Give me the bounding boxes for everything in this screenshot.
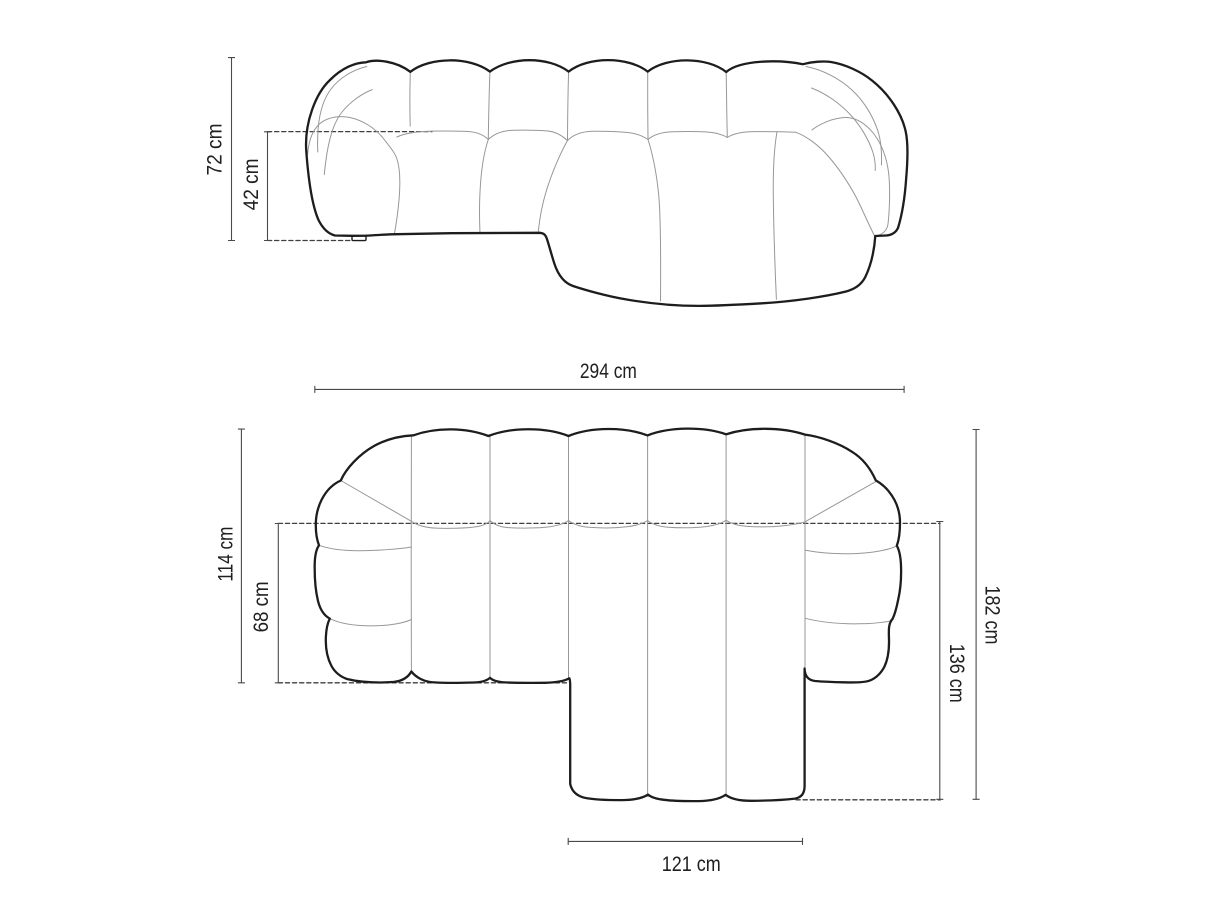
svg-text:42 cm: 42 cm: [240, 158, 263, 210]
svg-text:294 cm: 294 cm: [580, 360, 637, 383]
svg-text:121 cm: 121 cm: [662, 853, 721, 876]
svg-text:72 cm: 72 cm: [204, 124, 227, 176]
svg-text:68 cm: 68 cm: [250, 581, 273, 632]
svg-text:182 cm: 182 cm: [981, 586, 1004, 645]
svg-text:136 cm: 136 cm: [945, 644, 968, 703]
svg-text:114 cm: 114 cm: [215, 527, 238, 582]
